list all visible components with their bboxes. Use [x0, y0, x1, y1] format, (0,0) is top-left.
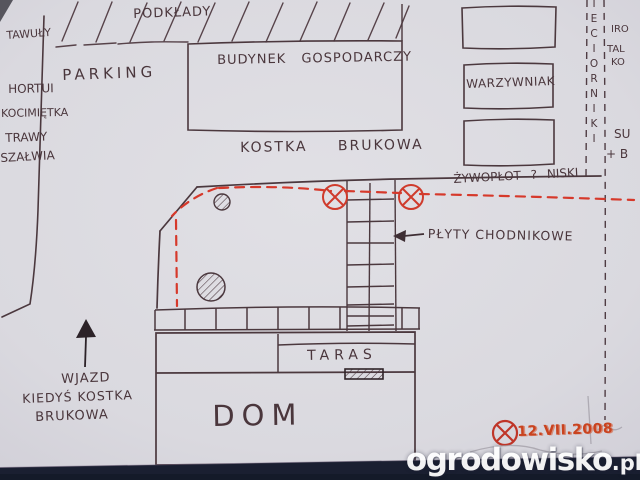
plant-label-5: SZAŁWIA — [0, 148, 55, 165]
large-tree — [197, 273, 225, 301]
red-x-marker-1 — [323, 185, 347, 209]
red-x-marker-2 — [399, 185, 423, 209]
plant-label-3: KOCIMIĘTKA — [1, 106, 68, 120]
date-note: 12.VII.2008 — [517, 421, 613, 440]
site-watermark: ogrodowisko.pl — [406, 443, 640, 480]
walkway-arrow-icon — [393, 230, 424, 242]
plant-label-4: TRAWY — [5, 130, 47, 145]
right-boundary-vertical-label: IECIORNIKI — [588, 0, 600, 148]
garden-plan-photo: PODKŁADY TAWUŁY HORTUI KOCIMIĘTKA TRAWY … — [0, 0, 640, 480]
plant-label-2: HORTUI — [8, 81, 54, 96]
driveway-note-line3: BRUKOWA — [35, 407, 109, 425]
edge-fragment-1: IRO — [611, 24, 629, 35]
site-watermark-name: ogrodowisko — [406, 442, 612, 478]
label-parking: PARKING — [62, 63, 156, 84]
label-terrace: TARAS — [307, 347, 377, 364]
storage-box-top — [462, 6, 556, 49]
edge-fragment-3: KO — [611, 57, 625, 68]
walkway-path — [347, 180, 396, 331]
label-house: DOM — [212, 397, 304, 433]
small-tree — [214, 194, 230, 210]
label-walkway-note: PŁYTY CHODNIKOWE — [428, 226, 574, 244]
photo-corner-shadow — [0, 0, 13, 22]
site-watermark-tld: .pl — [612, 451, 640, 475]
terrace-step — [345, 369, 383, 379]
edge-fragment-5: + B — [606, 147, 628, 161]
paving-slab-row — [154, 307, 420, 330]
left-boundary-line — [2, 16, 44, 317]
storage-box-bottom — [464, 119, 554, 166]
label-sleepers: PODKŁADY — [133, 4, 212, 22]
driveway-arrow-icon — [76, 319, 96, 367]
label-paving: KOSTKA BRUKOWA — [240, 137, 424, 156]
edge-fragment-2: TAL — [607, 44, 625, 55]
driveway-note-line1: WJAZD — [61, 370, 111, 387]
edge-fragment-4: SU — [614, 127, 630, 141]
